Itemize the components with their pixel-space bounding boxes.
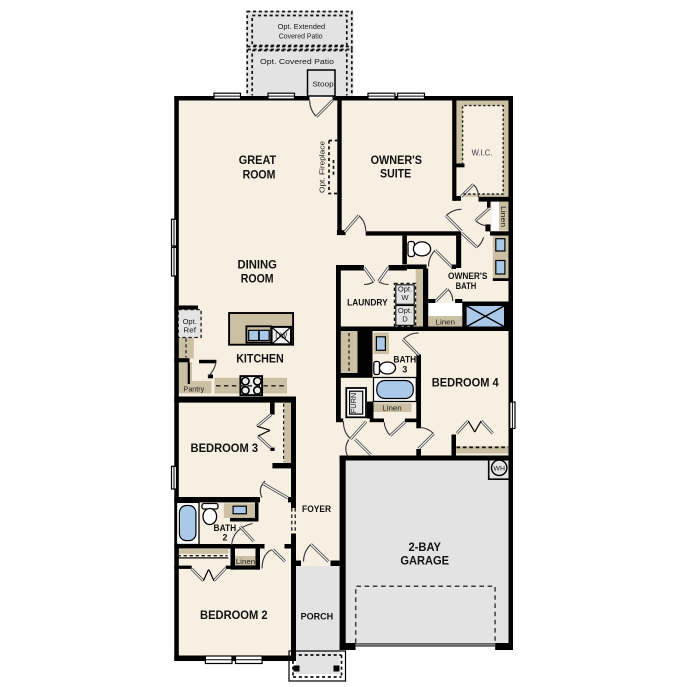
svg-text:DINING: DINING: [238, 257, 277, 271]
svg-text:Linen: Linen: [236, 557, 256, 566]
svg-text:Stoop: Stoop: [312, 79, 333, 88]
svg-text:2-BAY: 2-BAY: [408, 540, 441, 554]
svg-text:PORCH: PORCH: [301, 612, 334, 622]
svg-text:BEDROOM 2: BEDROOM 2: [200, 608, 268, 622]
svg-text:WH: WH: [493, 465, 505, 472]
svg-text:KITCHEN: KITCHEN: [236, 351, 284, 365]
svg-text:Linen: Linen: [436, 317, 456, 326]
svg-text:Opt.: Opt.: [183, 317, 197, 326]
svg-text:ROOM: ROOM: [243, 168, 276, 182]
svg-text:FURN: FURN: [349, 393, 358, 414]
svg-text:OWNER'S: OWNER'S: [371, 153, 422, 167]
svg-text:BATH: BATH: [214, 523, 237, 533]
svg-text:ROOM: ROOM: [241, 271, 274, 285]
svg-text:3: 3: [402, 364, 407, 374]
svg-text:W: W: [401, 293, 409, 302]
svg-text:Opt. Fireplace: Opt. Fireplace: [318, 141, 327, 193]
svg-text:SUITE: SUITE: [380, 167, 411, 181]
svg-text:OWNER'S: OWNER'S: [448, 271, 488, 281]
svg-text:D: D: [402, 315, 408, 324]
svg-text:Ref: Ref: [183, 326, 196, 335]
svg-text:Opt. Covered Patio: Opt. Covered Patio: [260, 57, 334, 66]
svg-text:GARAGE: GARAGE: [400, 554, 449, 568]
svg-text:Covered Patio: Covered Patio: [279, 32, 323, 41]
svg-text:Linen: Linen: [499, 206, 508, 227]
svg-text:BEDROOM 4: BEDROOM 4: [432, 376, 499, 390]
svg-text:Opt. Extended: Opt. Extended: [278, 22, 326, 31]
svg-text:Linen: Linen: [382, 404, 402, 413]
svg-text:BATH: BATH: [456, 281, 477, 291]
svg-text:BATH: BATH: [393, 355, 416, 365]
svg-text:W.I.C.: W.I.C.: [472, 148, 493, 157]
svg-text:2: 2: [222, 533, 227, 543]
svg-text:BEDROOM 3: BEDROOM 3: [191, 441, 259, 455]
svg-text:GREAT: GREAT: [239, 153, 277, 167]
svg-text:LAUNDRY: LAUNDRY: [347, 297, 388, 307]
svg-text:FOYER: FOYER: [302, 504, 332, 514]
svg-text:Pantry: Pantry: [184, 384, 205, 393]
svg-text:DW: DW: [275, 332, 287, 341]
